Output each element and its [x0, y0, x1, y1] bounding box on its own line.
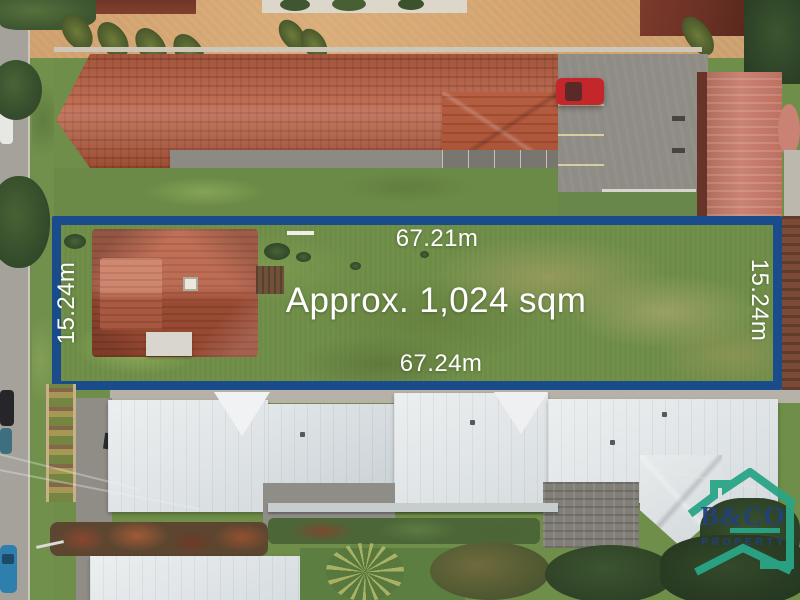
- parked-red-car: [556, 78, 604, 105]
- area-label: Approx. 1,024 sqm: [286, 281, 587, 321]
- left-width-label: 15.24m: [53, 262, 81, 344]
- paved-courtyard: [543, 482, 639, 548]
- agency-watermark: B&CO PROPERTY: [686, 468, 800, 600]
- aerial-property-photo: 67.21m Approx. 1,024 sqm 67.24m 15.24m 1…: [0, 0, 800, 600]
- agency-name: B&CO: [701, 501, 786, 531]
- parked-teal-car: [0, 428, 12, 454]
- boundary-wall: [54, 47, 702, 52]
- roof-vent: [470, 420, 475, 425]
- bottom-length-label: 67.24m: [400, 350, 482, 378]
- roof-fragment: [778, 104, 800, 156]
- wheel-stop: [672, 148, 685, 153]
- walkway-roof: [268, 503, 558, 512]
- timber-fence: [782, 216, 800, 390]
- top-length-label: 67.21m: [396, 225, 478, 253]
- neighbor-building-east: [707, 72, 782, 216]
- parked-blue-car: [0, 545, 17, 593]
- concrete-edge: [784, 150, 800, 216]
- agency-tagline: PROPERTY: [701, 536, 787, 548]
- parked-black-car: [0, 390, 14, 426]
- bush: [430, 542, 550, 600]
- parking-line: [558, 134, 604, 136]
- neighbor-building-south-roof: [268, 404, 394, 490]
- wheel-stop: [672, 116, 685, 121]
- grass: [54, 168, 558, 216]
- green-hedge: [268, 518, 540, 544]
- roof-vent: [662, 412, 667, 417]
- trees: [545, 545, 675, 600]
- brick-wall: [697, 72, 707, 216]
- veranda-roof: [170, 150, 444, 170]
- right-width-label: 15.24m: [745, 259, 773, 341]
- red-hedge: [50, 522, 268, 556]
- roof-vent: [300, 432, 305, 437]
- roof-vent: [610, 440, 615, 445]
- parking-line: [558, 164, 604, 166]
- palm-plant: [326, 543, 404, 600]
- neighbor-roof-south: [90, 556, 304, 600]
- white-fence: [602, 189, 696, 192]
- neighbor-roof-fragment: [96, 0, 196, 14]
- grass: [558, 192, 708, 216]
